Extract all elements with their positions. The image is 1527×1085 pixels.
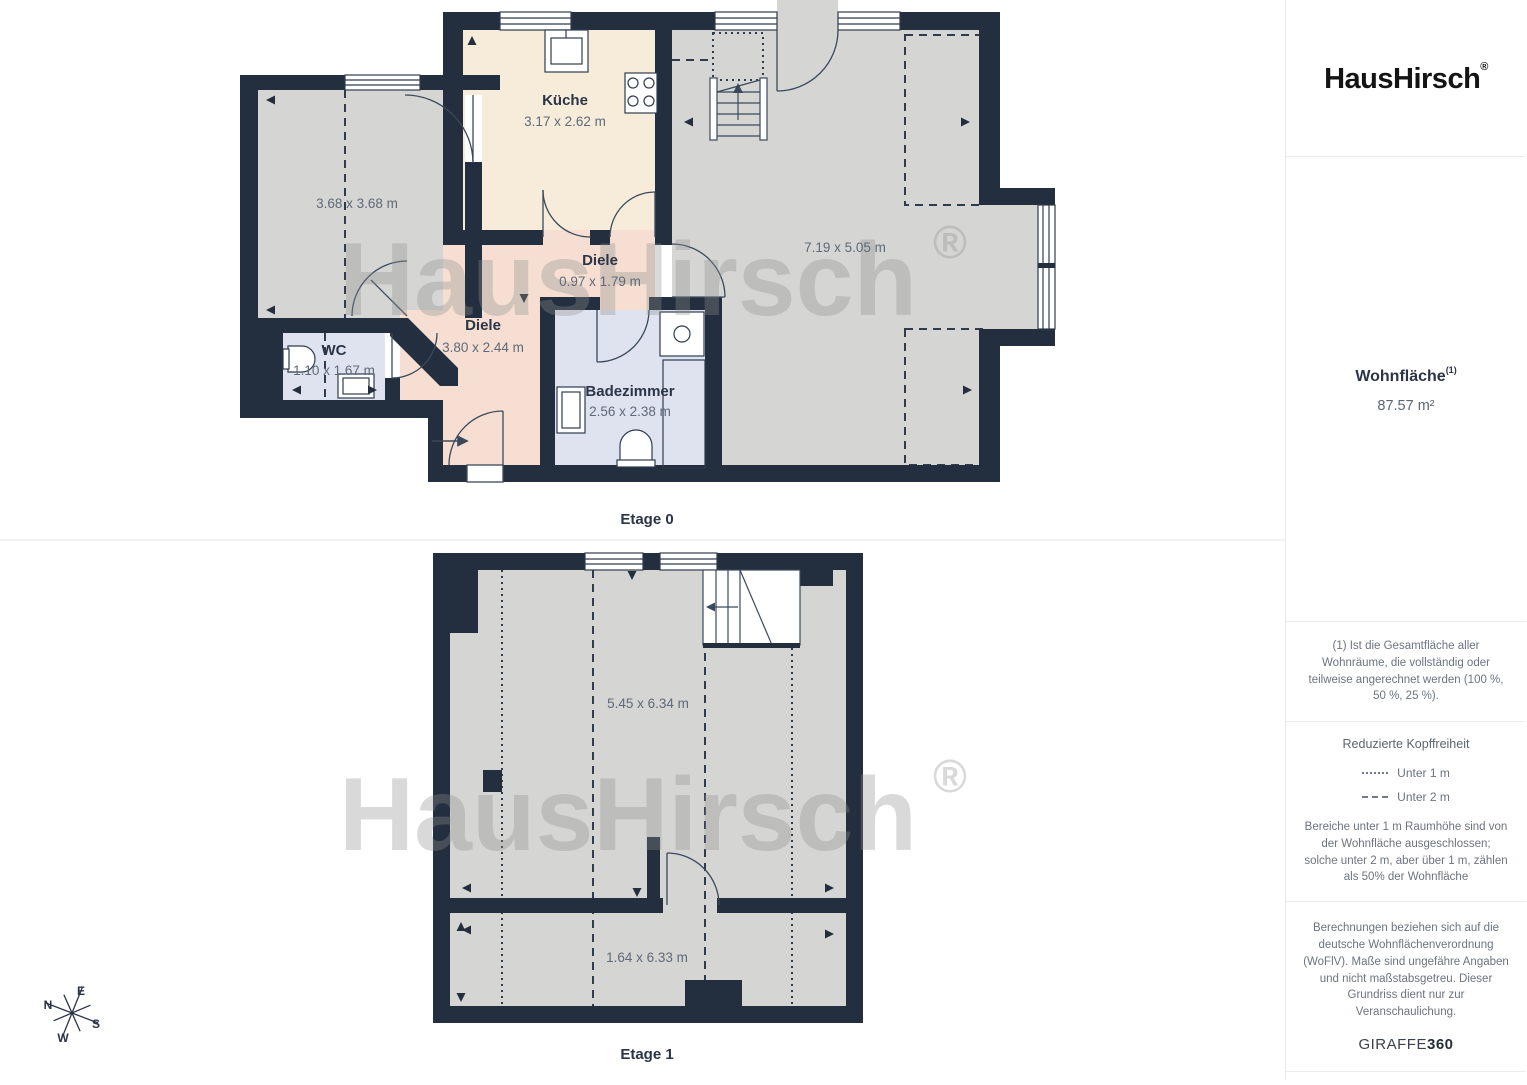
floorplan-canvas: HausHirsch ® 3.68 x 3.68 m Küche 3.17 x … xyxy=(0,0,1285,1080)
window xyxy=(660,553,717,570)
legend-item-under-2m: Unter 2 m xyxy=(1362,790,1450,804)
footnote-section: (1) Ist die Gesamtfläche aller Wohnräume… xyxy=(1286,622,1526,722)
living-area-label: Wohnfläche(1) xyxy=(1355,365,1456,386)
compass-s: S xyxy=(92,1017,100,1031)
living-area-section: Wohnfläche(1) 87.57 m² xyxy=(1286,157,1526,622)
compass-e: E xyxy=(77,984,85,998)
floor-etage-0: HausHirsch ® 3.68 x 3.68 m Küche 3.17 x … xyxy=(240,0,1055,528)
watermark-etage1: HausHirsch ® xyxy=(339,750,967,873)
floor-label-etage-1: Etage 1 xyxy=(620,1046,673,1063)
room-dims: 5.45 x 6.34 m xyxy=(607,696,689,711)
brand-logo-text: HausHirsch xyxy=(1324,63,1480,95)
room-dims: 1.64 x 6.33 m xyxy=(606,950,688,965)
room-dims: 1.10 x 1.67 m xyxy=(293,363,375,378)
dotted-line-icon xyxy=(1362,772,1388,774)
logo-section: HausHirsch® xyxy=(1286,0,1526,157)
window xyxy=(838,12,900,30)
compass-icon: E N S W xyxy=(44,984,100,1045)
legend-section: Reduzierte Kopffreiheit Unter 1 m Unter … xyxy=(1286,722,1526,902)
bath-tray-icon xyxy=(557,387,585,433)
info-sidebar: HausHirsch® Wohnfläche(1) 87.57 m² (1) I… xyxy=(1285,0,1526,1080)
stove-icon xyxy=(625,73,657,113)
room-dims: 3.80 x 2.44 m xyxy=(442,340,524,355)
compass-w: W xyxy=(57,1031,69,1045)
disclaimer-text: Berechnungen beziehen sich auf die deuts… xyxy=(1302,920,1510,1020)
room-dims: 7.19 x 5.05 m xyxy=(804,240,886,255)
floorplan-svg: HausHirsch ® 3.68 x 3.68 m Küche 3.17 x … xyxy=(0,0,1285,1080)
svg-text:HausHirsch: HausHirsch xyxy=(339,757,917,873)
window xyxy=(585,553,643,570)
window xyxy=(1038,205,1055,329)
brand-logo: HausHirsch® xyxy=(1324,61,1488,96)
floor-etage-1: HausHirsch ® 5.45 x 6.34 m 1.64 x 6.33 m… xyxy=(339,553,967,1063)
registered-mark: ® xyxy=(1480,61,1488,73)
room-dims: 3.17 x 2.62 m xyxy=(524,114,606,129)
svg-text:®: ® xyxy=(933,750,967,802)
room-dims: 0.97 x 1.79 m xyxy=(559,274,641,289)
watermark-etage0: HausHirsch ® xyxy=(339,216,967,338)
svg-text:®: ® xyxy=(933,216,967,268)
living-area-value: 87.57 m² xyxy=(1377,398,1434,414)
room-name: Badezimmer xyxy=(585,383,674,400)
floor-label-etage-0: Etage 0 xyxy=(620,511,673,528)
window xyxy=(345,75,420,90)
window xyxy=(715,12,777,30)
room-dims: 2.56 x 2.38 m xyxy=(589,404,671,419)
legend-title: Reduzierte Kopffreiheit xyxy=(1343,737,1470,751)
vendor-logo: GIRAFFE360 xyxy=(1358,1036,1453,1053)
footnote-text: (1) Ist die Gesamtfläche aller Wohnräume… xyxy=(1306,638,1506,705)
etage1-stairs xyxy=(703,570,800,648)
room-name: WC xyxy=(322,342,347,359)
room-name: Diele xyxy=(465,317,501,334)
window xyxy=(500,12,571,30)
dashed-line-icon xyxy=(1362,796,1388,798)
kitchen-sink-icon xyxy=(545,30,588,72)
room-dims: 3.68 x 3.68 m xyxy=(316,196,398,211)
room-name: Diele xyxy=(582,252,618,269)
disclaimer-section: Berechnungen beziehen sich auf die deuts… xyxy=(1286,902,1526,1072)
footnote-marker: (1) xyxy=(1446,365,1457,375)
room-name: Küche xyxy=(542,92,588,109)
legend-item-under-1m: Unter 1 m xyxy=(1362,766,1450,780)
compass-n: N xyxy=(44,998,53,1012)
legend-description: Bereiche unter 1 m Raumhöhe sind von der… xyxy=(1304,819,1508,886)
